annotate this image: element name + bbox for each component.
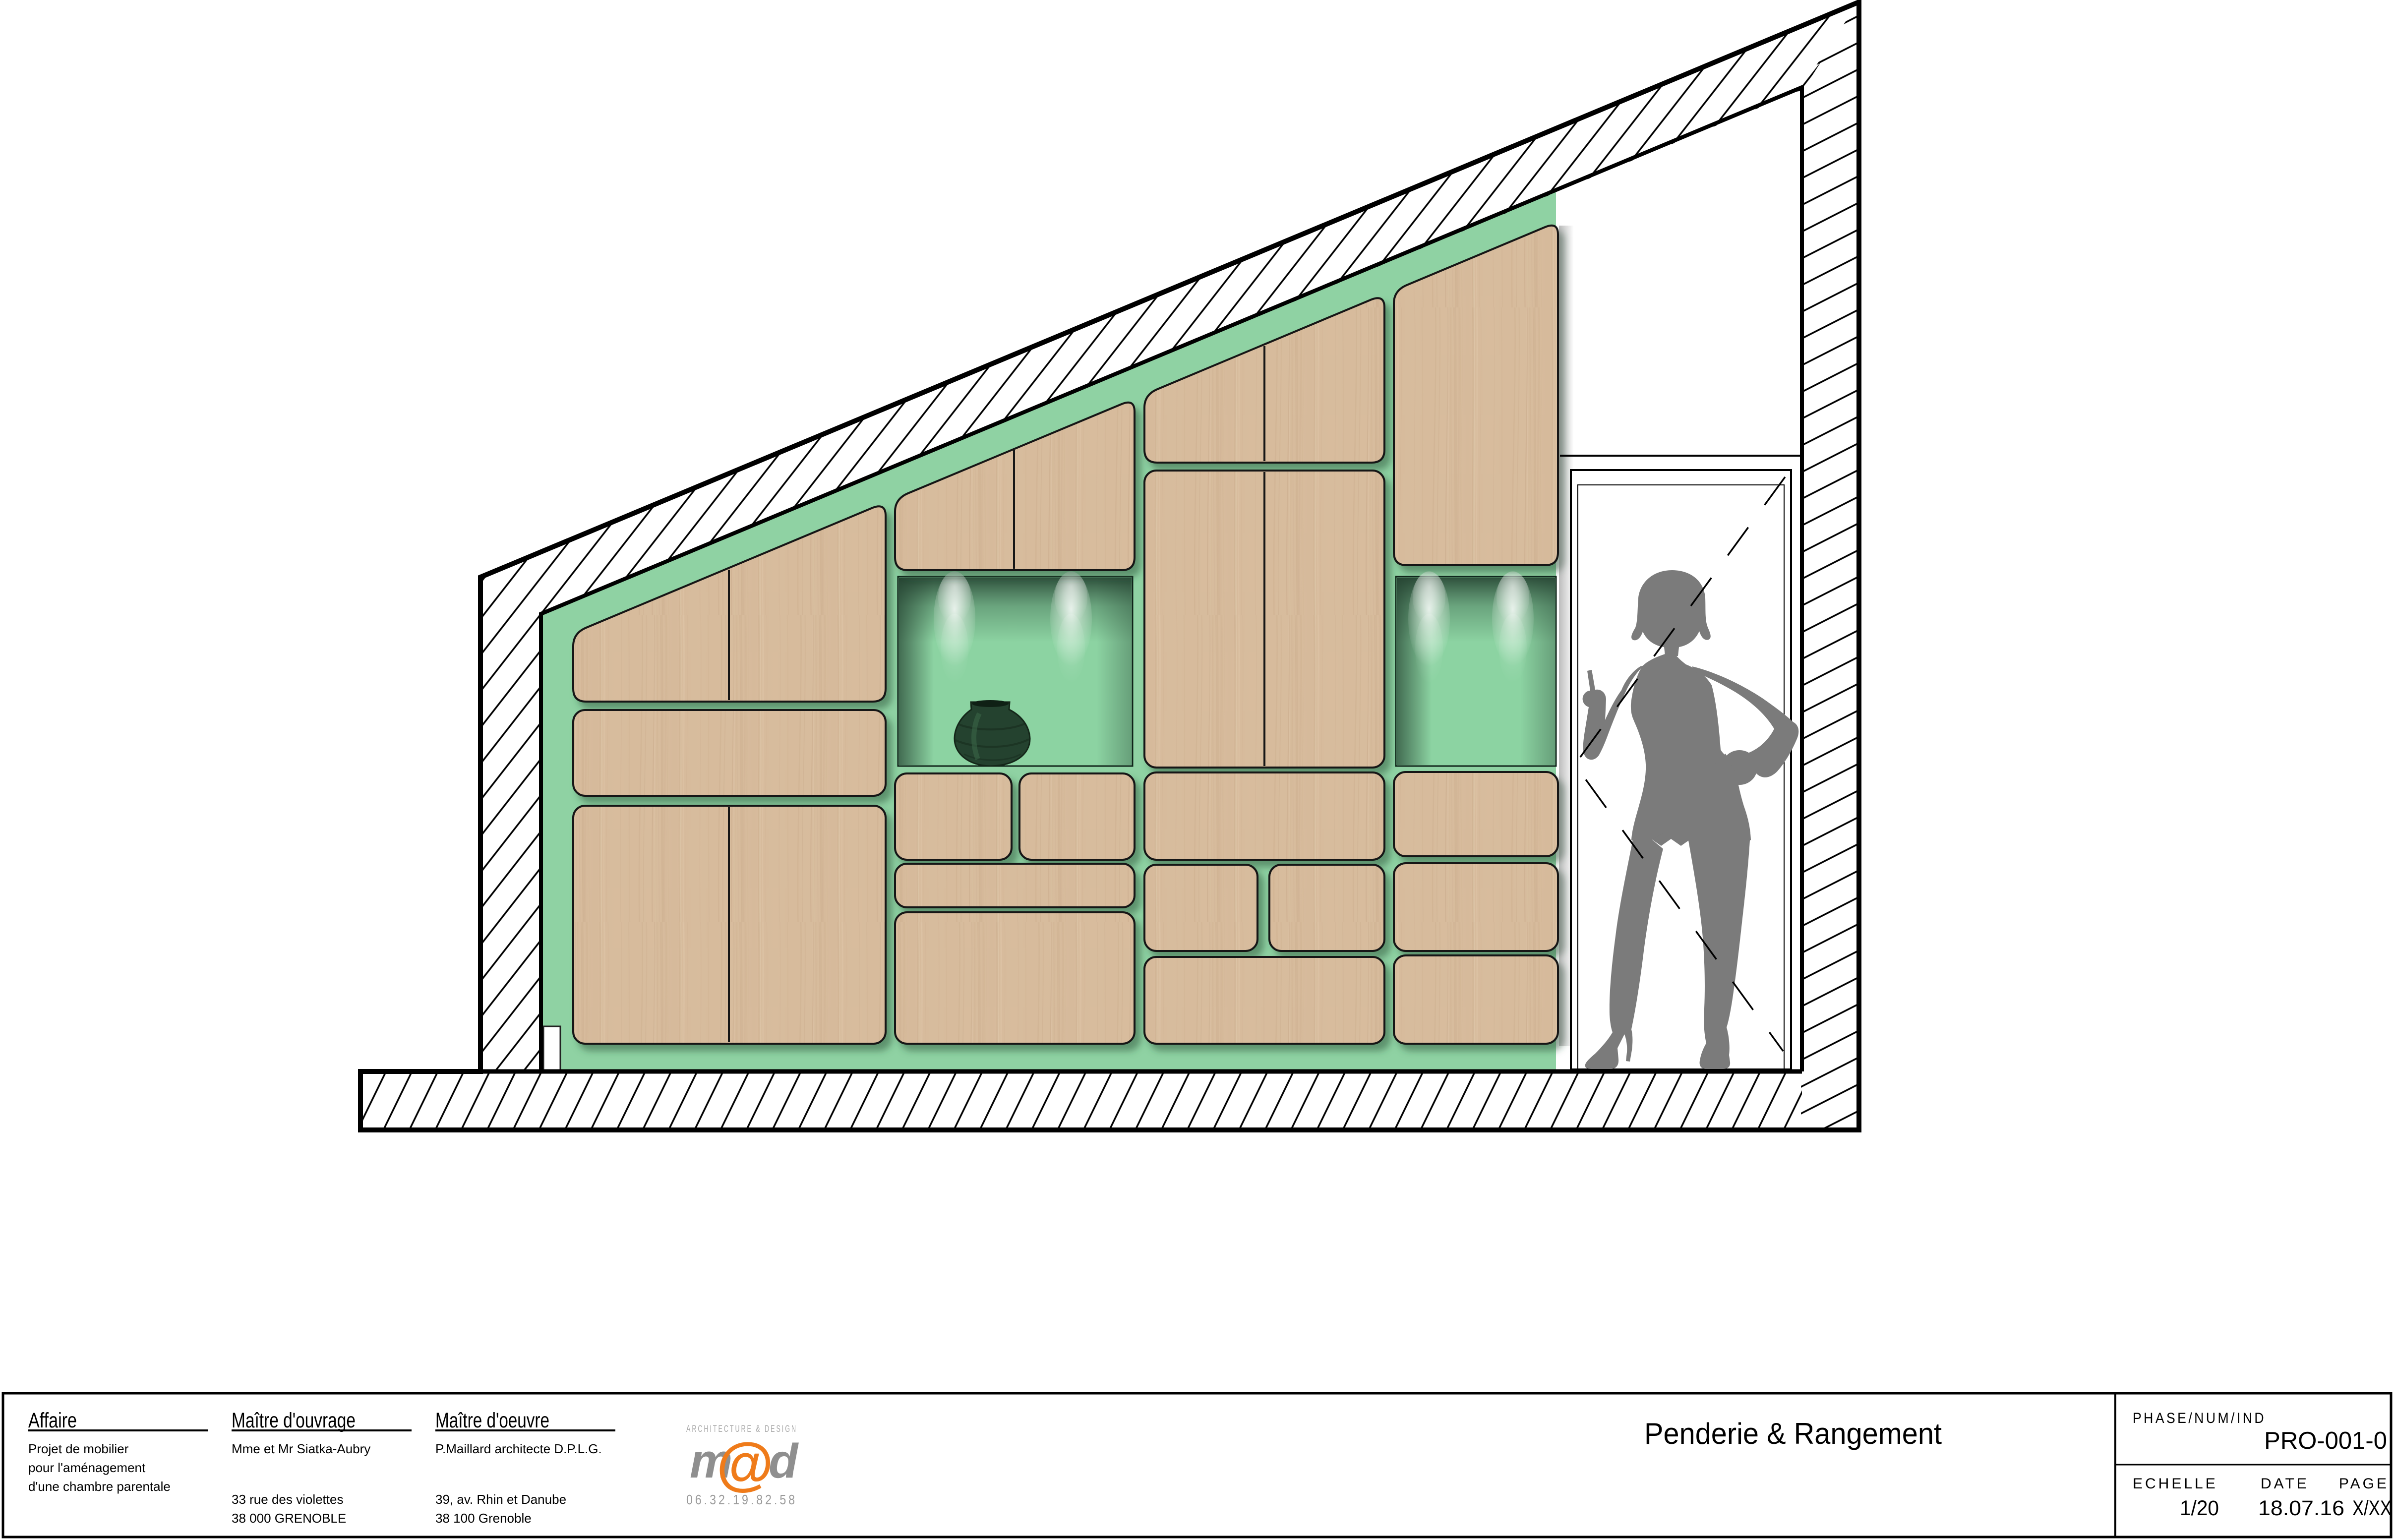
svg-text:Mme et Mr Siatka-Aubry: Mme et Mr Siatka-Aubry [232,1441,370,1456]
svg-text:Maître d'oeuvre: Maître d'oeuvre [435,1409,549,1432]
svg-text:Affaire: Affaire [28,1409,77,1432]
svg-text:X/XX: X/XX [2352,1496,2392,1520]
svg-text:DATE: DATE [2261,1476,2309,1492]
svg-text:1/20: 1/20 [2180,1496,2219,1520]
svg-text:Maître d'ouvrage: Maître d'ouvrage [232,1409,356,1432]
svg-text:PAGE: PAGE [2339,1476,2389,1492]
svg-text:Projet de mobilier: Projet de mobilier [28,1441,129,1456]
svg-text:33 rue des violettes: 33 rue des violettes [232,1492,343,1507]
svg-text:38 000 GRENOBLE: 38 000 GRENOBLE [232,1511,346,1526]
svg-text:18.07.16: 18.07.16 [2258,1496,2344,1520]
svg-text:Penderie & Rangement: Penderie & Rangement [1644,1417,1942,1450]
svg-text:pour l'aménagement: pour l'aménagement [28,1460,146,1475]
svg-text:d: d [769,1434,799,1488]
svg-text:06.32.19.82.58: 06.32.19.82.58 [686,1492,797,1507]
svg-text:ECHELLE: ECHELLE [2133,1476,2218,1492]
svg-text:39, av. Rhin et Danube: 39, av. Rhin et Danube [435,1492,566,1507]
svg-text:@: @ [716,1432,773,1497]
svg-text:38 100 Grenoble: 38 100 Grenoble [435,1511,532,1526]
svg-text:d'une chambre parentale: d'une chambre parentale [28,1479,171,1494]
svg-text:P.Maillard architecte D.P.L.G.: P.Maillard architecte D.P.L.G. [435,1441,602,1456]
svg-text:PHASE/NUM/IND: PHASE/NUM/IND [2133,1410,2266,1426]
svg-text:PRO-001-0: PRO-001-0 [2264,1427,2387,1454]
